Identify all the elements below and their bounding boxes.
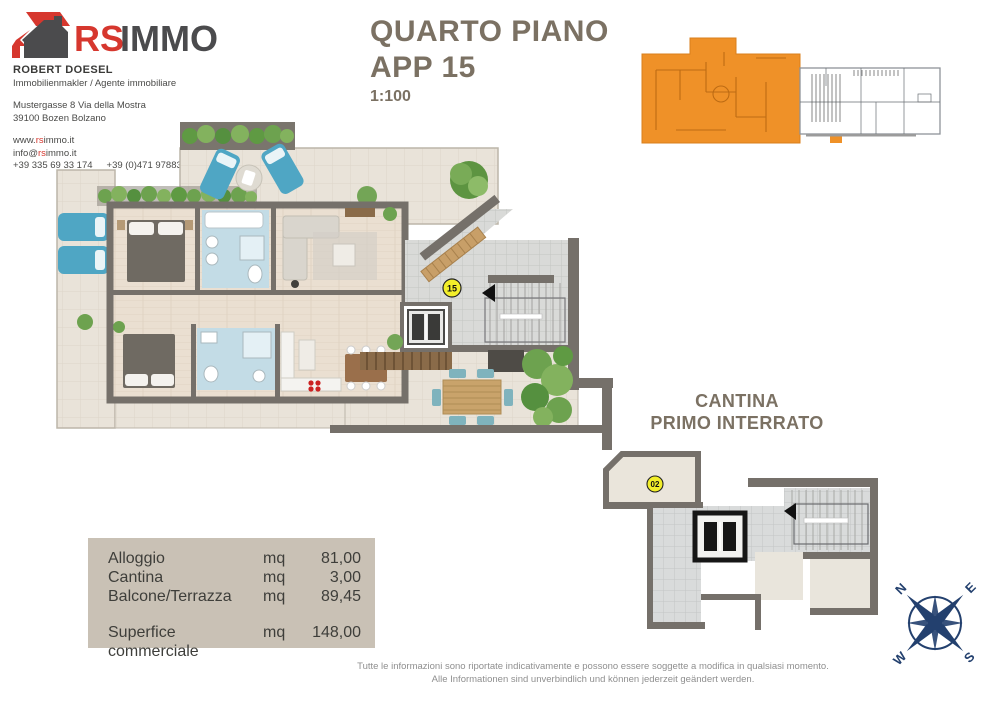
brochure-page: { "logo": { "rs": "RS", "immo": "IMMO" }… (0, 0, 1000, 706)
logo-text-immo: IMMO (120, 18, 218, 59)
bedroom (117, 220, 193, 282)
sun-lounger (58, 213, 109, 241)
elevator (695, 513, 745, 560)
disclaimer-line-de: Alle Informationen sind unverbindlich un… (273, 674, 913, 687)
agent-role: Immobilienmakler / Agente immobiliare (13, 78, 201, 91)
compass-s: S (961, 649, 978, 666)
bathroom (202, 210, 269, 288)
unit-number-badge: 15 (443, 279, 461, 297)
logo-house-icon (22, 16, 68, 58)
disclaimer: Tutte le informazioni sono riportate ind… (273, 661, 913, 686)
agent-name: ROBERT DOESEL (13, 64, 201, 77)
cellar-number-badge: 02 (651, 480, 660, 489)
sun-lounger (58, 246, 109, 274)
stairs (784, 488, 872, 552)
neighbour-unit-outline (800, 68, 940, 137)
title-scale: 1:100 (370, 88, 609, 106)
svg-text:15: 15 (447, 284, 457, 294)
bathroom (197, 328, 275, 390)
title-apartment: APP 15 (370, 50, 609, 86)
compass-e: E (962, 579, 979, 596)
table-row: Alloggio mq 81,00 (108, 549, 361, 568)
palm-tree (450, 161, 488, 199)
title-floor: QUARTO PIANO (370, 14, 609, 50)
elevator (402, 304, 450, 350)
terrace-round-table (236, 165, 262, 191)
table-total-row: Superfice commerciale mq 148,00 (108, 623, 361, 661)
agent-address-1: Mustergasse 8 Via della Mostra (13, 100, 201, 113)
terrace-plant (77, 314, 93, 330)
cellar-room: 02 (606, 454, 698, 506)
area-table: Alloggio mq 81,00 Cantina mq 3,00 Balcon… (88, 538, 375, 648)
cantina-plan: 02 (598, 448, 890, 640)
cantina-heading: CANTINA PRIMO INTERRATO (612, 390, 862, 434)
table-row: Cantina mq 3,00 (108, 568, 361, 587)
logo-text-rs: RS (74, 18, 124, 59)
stairs (485, 283, 565, 345)
terrace-wood-screen (360, 352, 452, 370)
terrace-plant (387, 334, 403, 350)
main-floor-plan: 15 (45, 112, 635, 457)
disclaimer-line-it: Tutte le informazioni sono riportate ind… (273, 661, 913, 674)
table-row: Balcone/Terrazza mq 89,45 (108, 587, 361, 606)
plan-title: QUARTO PIANO APP 15 1:100 (370, 14, 609, 106)
compass-rose: N E S W (876, 572, 994, 674)
highlighted-unit-shape (642, 38, 800, 143)
bbq-grill (488, 350, 524, 372)
floor-key-plan (636, 22, 951, 150)
rsimmo-logo: RS IMMO (10, 6, 220, 62)
